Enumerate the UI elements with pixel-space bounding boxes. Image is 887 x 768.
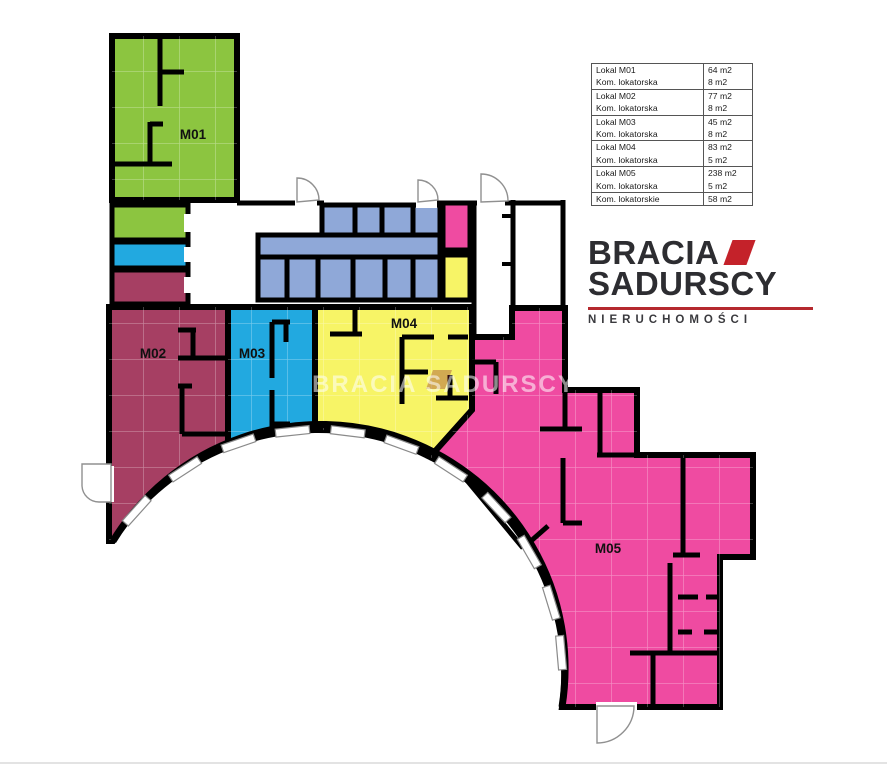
- unit-label-m05: M05: [595, 541, 622, 556]
- table-cell-label: Lokal M01: [592, 64, 703, 76]
- table-group: Lokal M05238 m2 Kom. lokatorska5 m2: [592, 167, 752, 193]
- table-cell-value: 83 m2: [703, 141, 752, 153]
- table-cell-value: 77 m2: [703, 90, 752, 102]
- table-cell-value: 8 m2: [703, 76, 752, 88]
- brand-name-line2: SADURSCY: [588, 268, 816, 299]
- door-gap: [184, 277, 193, 293]
- storage-cell: [355, 205, 382, 235]
- storage-cells: [258, 205, 440, 300]
- floor-plan-image: M01 M02 M03 M04 M05 BRACIA SADURSCY: [0, 0, 887, 768]
- table-row: Kom. lokatorska8 m2: [592, 128, 752, 140]
- brand-rule: [588, 307, 813, 310]
- storage-corridor: [258, 235, 440, 257]
- table-row: Kom. lokatorska5 m2: [592, 154, 752, 166]
- table-row: Lokal M0483 m2: [592, 141, 752, 153]
- m02-grid: [109, 307, 228, 541]
- table-cell-label: Kom. lokatorska: [592, 154, 703, 166]
- storage-cell-m05: [443, 203, 470, 250]
- table-group: Kom. lokatorskie58 m2: [592, 193, 752, 205]
- storage-cell: [413, 257, 440, 300]
- table-cell-value: 5 m2: [703, 154, 752, 166]
- door-swing: [418, 180, 438, 202]
- storage-strip-m02: [112, 270, 188, 304]
- unit-label-m04: M04: [391, 316, 418, 331]
- table-row: Kom. lokatorska8 m2: [592, 76, 752, 88]
- table-cell-value: 5 m2: [703, 180, 752, 192]
- area-table: Lokal M0164 m2 Kom. lokatorska8 m2 Lokal…: [591, 63, 753, 206]
- table-row: Kom. lokatorska5 m2: [592, 180, 752, 192]
- table-cell-label: Kom. lokatorska: [592, 102, 703, 114]
- brand-logo-row: BRACIA: [588, 237, 816, 268]
- table-cell-value: 45 m2: [703, 116, 752, 128]
- storage-cell: [258, 257, 287, 300]
- storage-cell: [413, 205, 440, 235]
- door-gap: [184, 247, 193, 262]
- table-row: Kom. lokatorska8 m2: [592, 102, 752, 114]
- table-row: Lokal M0164 m2: [592, 64, 752, 76]
- table-group: Lokal M0164 m2 Kom. lokatorska8 m2: [592, 64, 752, 90]
- storage-cell: [318, 257, 353, 300]
- unit-label-m02: M02: [140, 346, 166, 361]
- table-group: Lokal M0345 m2 Kom. lokatorska8 m2: [592, 116, 752, 142]
- storage-cell: [382, 205, 413, 235]
- table-cell-label: Lokal M04: [592, 141, 703, 153]
- brand-tagline: NIERUCHOMOŚCI: [588, 314, 816, 326]
- door-swing: [82, 464, 111, 502]
- table-group: Lokal M0483 m2 Kom. lokatorska5 m2: [592, 141, 752, 167]
- storage-strip-m03: [112, 242, 188, 268]
- storage-cell: [385, 257, 413, 300]
- door-swing: [481, 174, 508, 202]
- m01-grid: [112, 36, 237, 200]
- brand-parallelogram-icon: [724, 240, 756, 265]
- table-row: Kom. lokatorskie58 m2: [592, 193, 752, 205]
- table-cell-value: 64 m2: [703, 64, 752, 76]
- unit-label-m01: M01: [180, 127, 207, 142]
- table-cell-label: Kom. lokatorska: [592, 180, 703, 192]
- brand-logo: BRACIA SADURSCY NIERUCHOMOŚCI: [588, 237, 816, 326]
- table-cell-value: 58 m2: [703, 193, 752, 205]
- unit-label-m03: M03: [239, 346, 266, 361]
- m05-grid: [430, 308, 753, 707]
- floorplan-page: { "page": { "background": "#ffffff", "wi…: [0, 0, 887, 768]
- door-swing: [297, 178, 319, 202]
- storage-cell-m04: [443, 255, 470, 300]
- table-row: Lokal M0277 m2: [592, 90, 752, 102]
- table-row: Lokal M05238 m2: [592, 167, 752, 179]
- storage-strip-m01: [112, 205, 188, 240]
- table-cell-value: 238 m2: [703, 167, 752, 179]
- table-cell-label: Lokal M03: [592, 116, 703, 128]
- storage-cell: [353, 257, 385, 300]
- table-cell-value: 8 m2: [703, 102, 752, 114]
- table-group: Lokal M0277 m2 Kom. lokatorska8 m2: [592, 90, 752, 116]
- table-cell-label: Lokal M02: [592, 90, 703, 102]
- door-swing: [597, 706, 634, 743]
- storage-cell: [287, 257, 318, 300]
- door-gap: [184, 214, 193, 232]
- brand-name-line1: BRACIA: [588, 237, 719, 268]
- table-cell-label: Lokal M05: [592, 167, 703, 179]
- table-cell-value: 8 m2: [703, 128, 752, 140]
- table-cell-label: Kom. lokatorska: [592, 76, 703, 88]
- table-cell-label: Kom. lokatorskie: [592, 193, 703, 205]
- table-row: Lokal M0345 m2: [592, 116, 752, 128]
- storage-cell: [322, 205, 355, 235]
- table-cell-label: Kom. lokatorska: [592, 128, 703, 140]
- watermark-text: BRACIA SADURSCY: [312, 371, 576, 398]
